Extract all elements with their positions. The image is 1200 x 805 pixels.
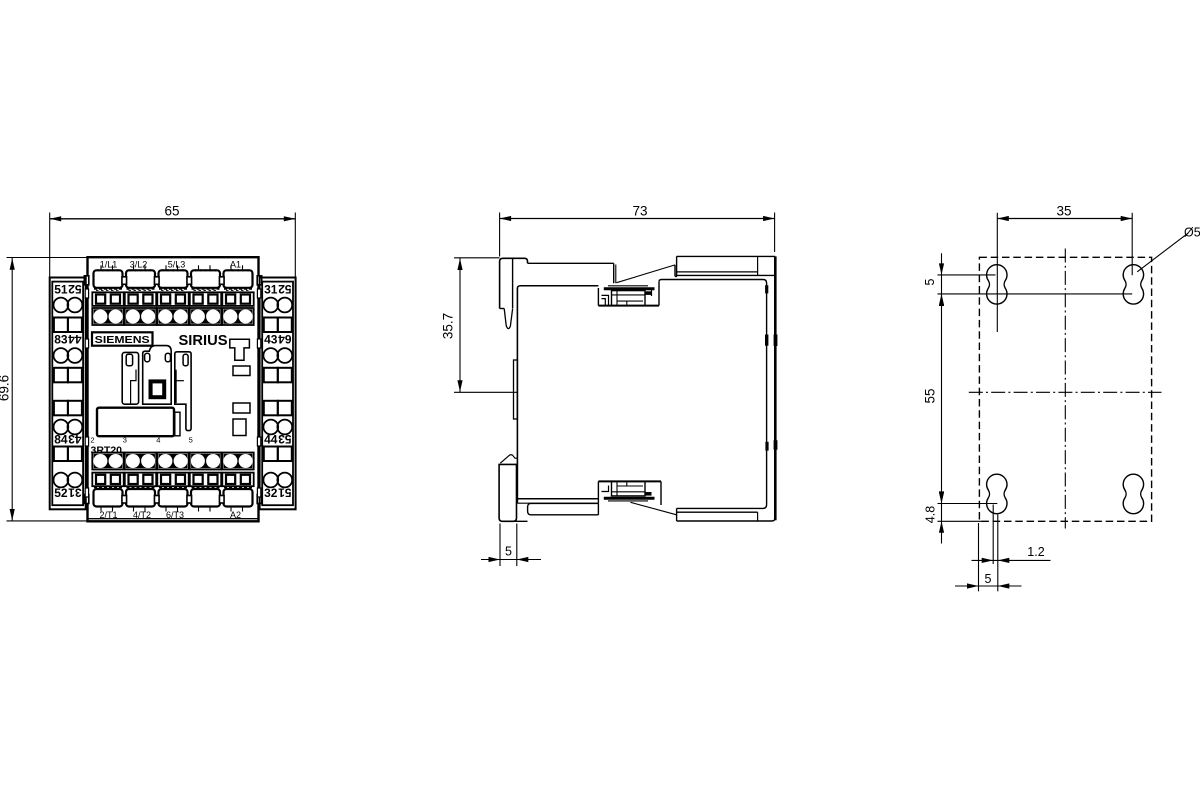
svg-text:35: 35: [1056, 204, 1071, 219]
svg-text:SIEMENS: SIEMENS: [95, 334, 150, 346]
svg-text:A2: A2: [230, 510, 241, 520]
svg-text:4/T2: 4/T2: [133, 510, 151, 520]
svg-text:SIRIUS: SIRIUS: [179, 332, 228, 349]
svg-text:2: 2: [90, 436, 94, 445]
svg-text:4.8: 4.8: [924, 506, 938, 523]
svg-text:55: 55: [923, 388, 938, 403]
svg-text:A1: A1: [230, 259, 241, 269]
svg-text:5: 5: [985, 572, 992, 586]
svg-text:1/L1: 1/L1: [100, 259, 118, 269]
svg-text:43: 43: [264, 333, 278, 347]
svg-text:31: 31: [264, 283, 278, 297]
svg-text:3: 3: [123, 436, 127, 445]
svg-text:2/T1: 2/T1: [99, 510, 117, 520]
svg-text:5/L3: 5/L3: [168, 259, 186, 269]
svg-text:69.6: 69.6: [0, 375, 12, 401]
svg-text:5: 5: [923, 278, 937, 285]
svg-text:5: 5: [189, 436, 193, 445]
svg-text:83: 83: [54, 333, 68, 347]
svg-text:64: 64: [278, 332, 292, 346]
svg-text:4: 4: [156, 436, 160, 445]
svg-text:35.7: 35.7: [441, 313, 456, 339]
svg-text:6/T3: 6/T3: [166, 510, 184, 520]
svg-text:1.2: 1.2: [1027, 545, 1044, 559]
svg-text:52: 52: [68, 282, 82, 296]
svg-text:44: 44: [68, 332, 82, 346]
svg-text:65: 65: [164, 204, 179, 219]
svg-text:5: 5: [505, 545, 512, 559]
svg-text:73: 73: [632, 204, 647, 219]
svg-text:51: 51: [54, 283, 68, 297]
svg-text:Ø5: Ø5: [1184, 226, 1200, 240]
svg-text:52: 52: [278, 282, 292, 296]
